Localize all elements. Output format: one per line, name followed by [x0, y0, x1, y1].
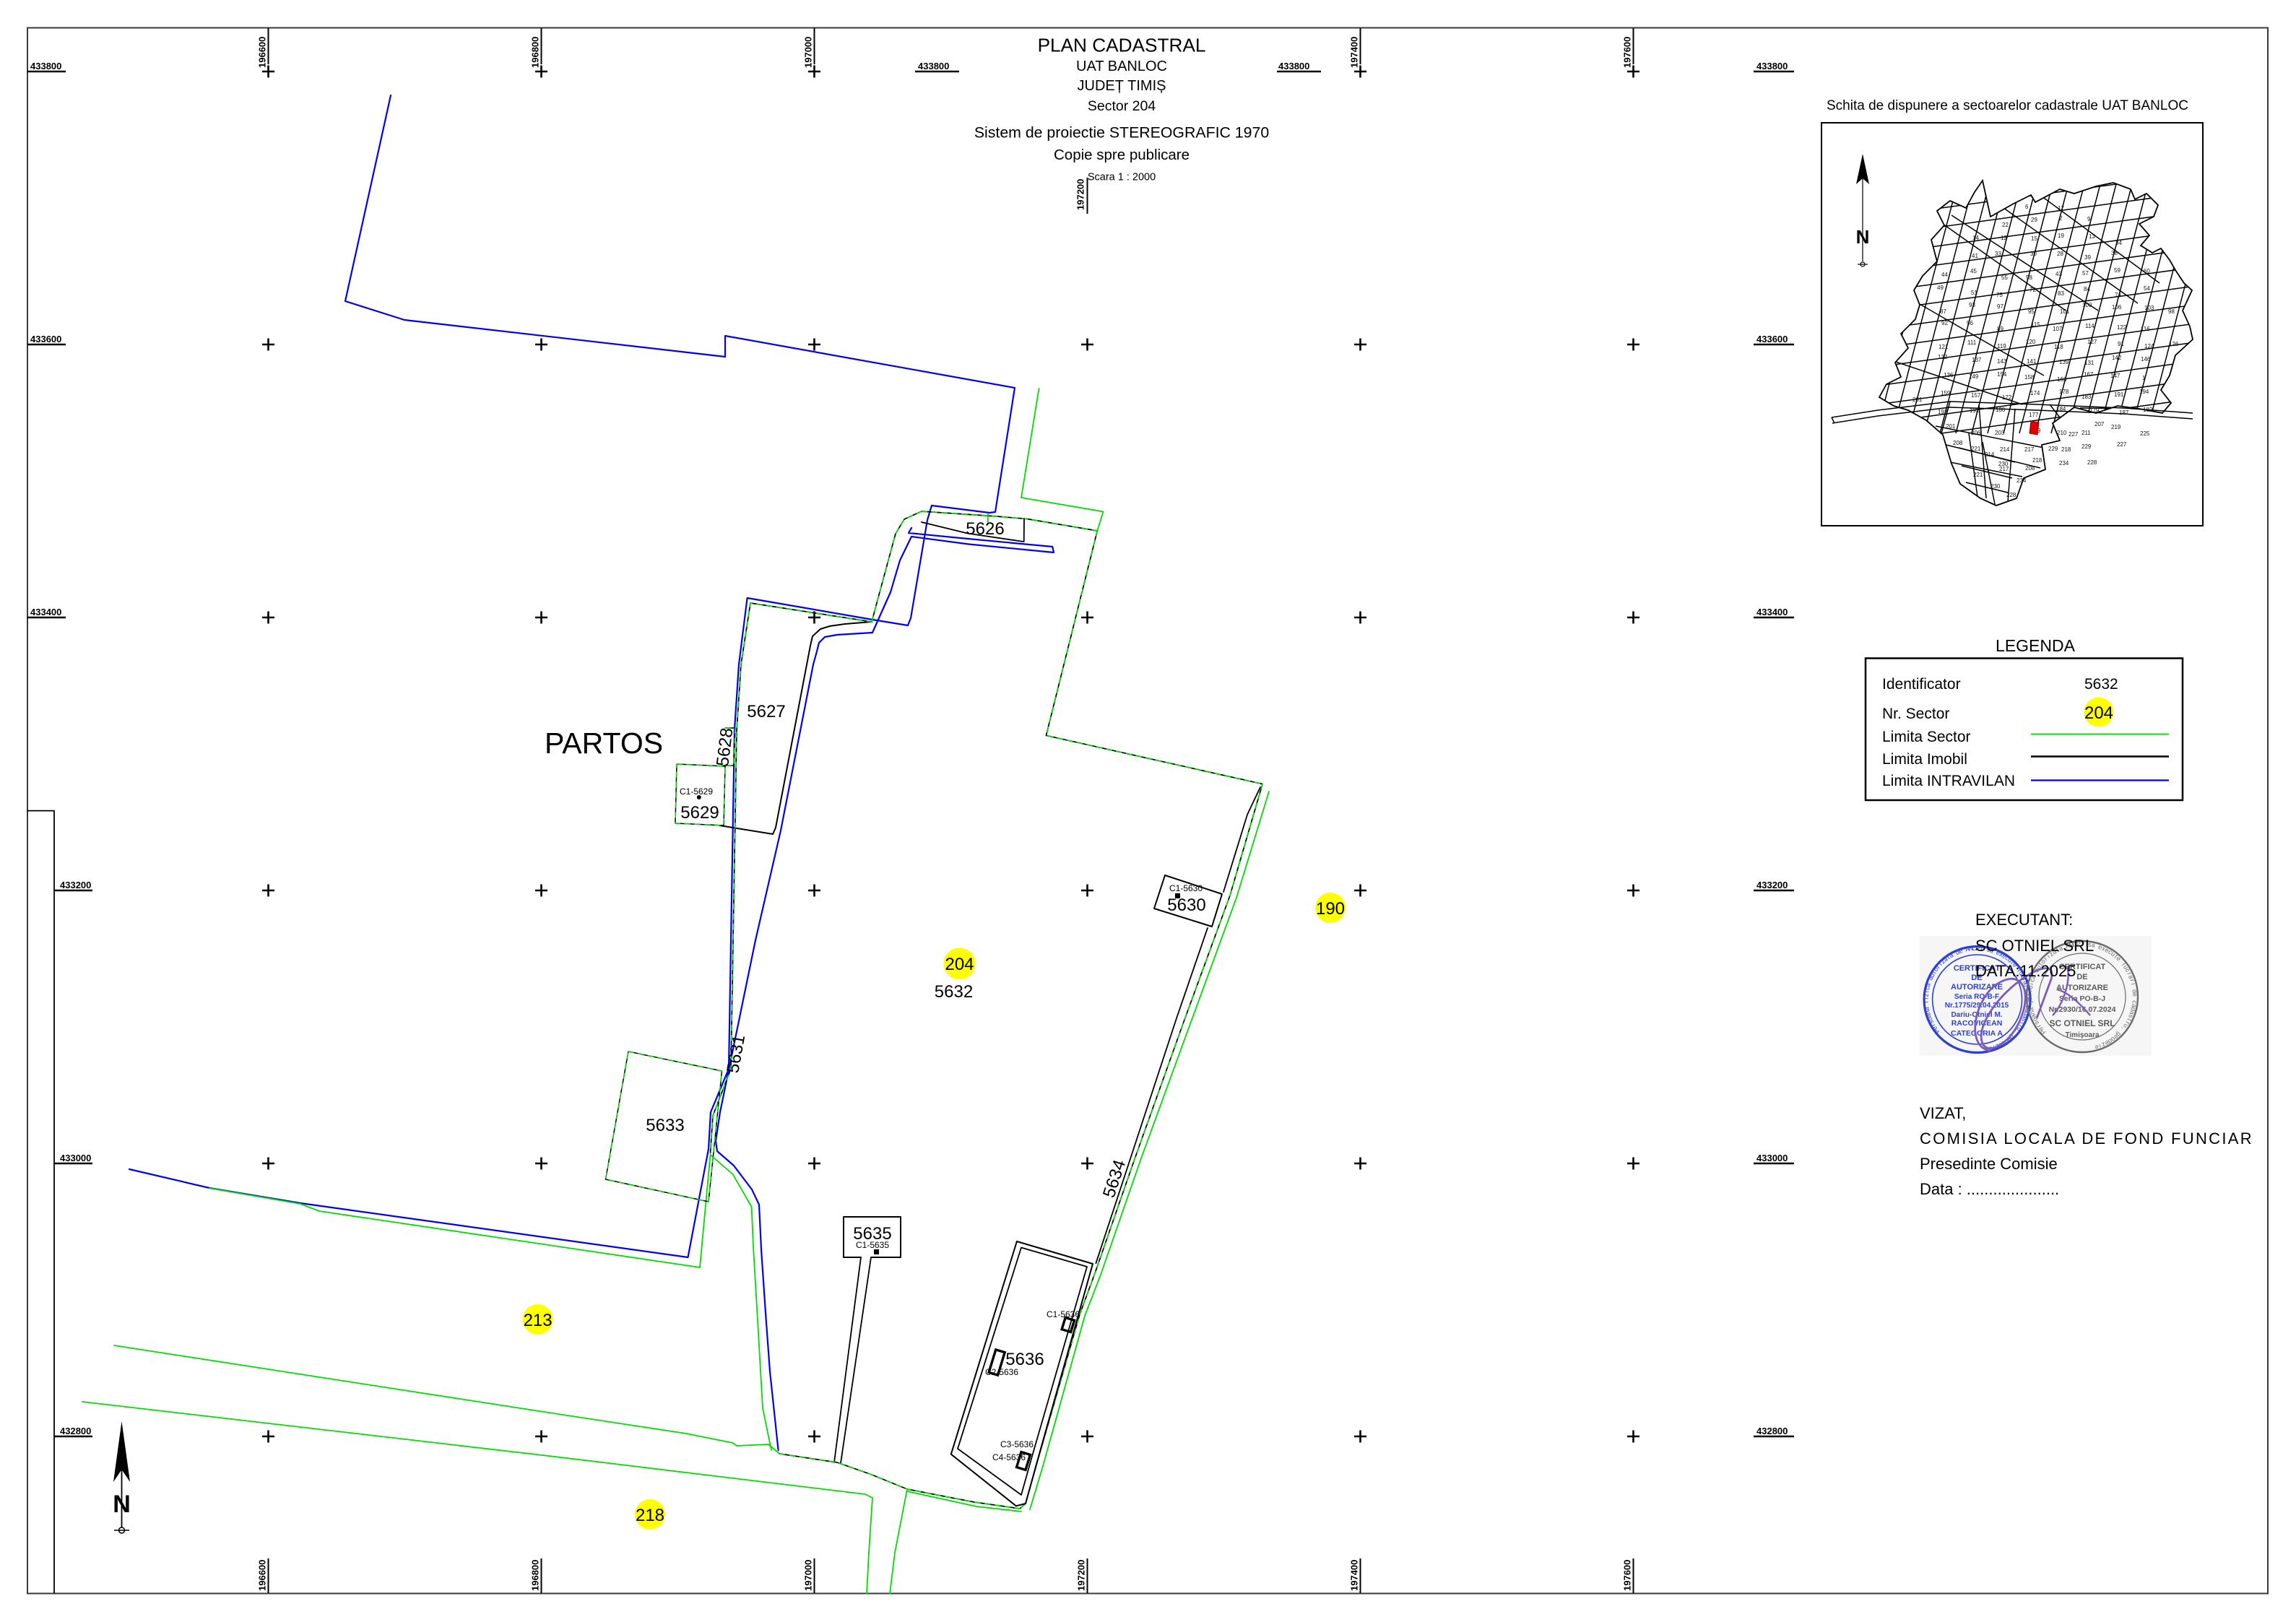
svg-text:196600: 196600: [257, 37, 268, 68]
svg-text:433200: 433200: [60, 880, 91, 890]
svg-text:Sistem de proiectie STEREOGRAF: Sistem de proiectie STEREOGRAFIC 1970: [974, 124, 1269, 142]
svg-text:57: 57: [2082, 270, 2089, 277]
svg-text:227: 227: [2117, 441, 2127, 448]
svg-text:192: 192: [1970, 407, 1980, 414]
svg-text:182: 182: [2143, 407, 2153, 413]
svg-text:93: 93: [1969, 302, 1975, 308]
svg-text:Copie spre publicare: Copie spre publicare: [1054, 147, 1190, 163]
svg-text:58: 58: [2026, 274, 2032, 281]
svg-text:Schita de dispunere a sectoare: Schita de dispunere a sectoarelor cadast…: [1827, 98, 2188, 113]
svg-text:28: 28: [2057, 251, 2063, 257]
svg-text:115: 115: [2031, 321, 2040, 328]
svg-text:114: 114: [2085, 323, 2094, 329]
svg-text:225: 225: [2140, 430, 2150, 437]
svg-text:184: 184: [2056, 406, 2066, 412]
svg-text:AUTORIZARE: AUTORIZARE: [1951, 983, 2003, 992]
svg-text:5627: 5627: [747, 702, 785, 721]
svg-text:228: 228: [2087, 459, 2097, 466]
svg-text:107: 107: [2053, 326, 2063, 332]
svg-text:Limita Sector: Limita Sector: [1882, 729, 1971, 745]
svg-text:122: 122: [2117, 324, 2127, 331]
svg-text:177: 177: [2029, 412, 2039, 418]
svg-text:DE: DE: [2076, 973, 2087, 981]
svg-text:C2-5636: C2-5636: [985, 1367, 1018, 1377]
svg-text:214: 214: [2000, 446, 2010, 453]
svg-text:221: 221: [1971, 446, 1981, 452]
svg-text:136: 136: [1944, 372, 1954, 378]
svg-text:u: u: [2026, 997, 2033, 1000]
svg-text:106: 106: [2112, 304, 2122, 311]
svg-text:6: 6: [2025, 204, 2029, 210]
svg-text:i: i: [1923, 998, 1930, 999]
svg-text:208: 208: [1953, 440, 1963, 446]
svg-text:227: 227: [2068, 431, 2079, 438]
svg-text:C1-5636: C1-5636: [1047, 1309, 1080, 1319]
svg-text:5632: 5632: [2084, 676, 2118, 693]
svg-text:433000: 433000: [60, 1153, 91, 1163]
svg-text:196800: 196800: [530, 37, 541, 68]
svg-text:1: 1: [2142, 375, 2146, 381]
svg-text:147: 147: [2110, 373, 2120, 379]
svg-text:217: 217: [2024, 446, 2035, 453]
svg-text:221: 221: [1973, 472, 1983, 478]
svg-text:146: 146: [2141, 356, 2151, 363]
svg-text:VIZAT,: VIZAT,: [1920, 1104, 1966, 1122]
svg-text:141: 141: [2027, 358, 2037, 365]
svg-text:229: 229: [2048, 446, 2058, 452]
svg-text:124: 124: [2144, 343, 2154, 350]
svg-text:Seria PO-B-J: Seria PO-B-J: [2059, 994, 2105, 1003]
svg-text:2: 2: [2059, 215, 2063, 222]
svg-text:5629: 5629: [680, 803, 719, 823]
svg-text:197400: 197400: [1349, 1560, 1360, 1591]
svg-text:43: 43: [2055, 271, 2062, 277]
svg-text:83: 83: [2058, 290, 2064, 297]
svg-text:191: 191: [2114, 391, 2124, 398]
svg-text:433600: 433600: [30, 334, 61, 344]
svg-text:59: 59: [2114, 267, 2120, 274]
svg-text:157: 157: [1971, 392, 1981, 399]
svg-text:Limita Imobil: Limita Imobil: [1882, 751, 1967, 768]
svg-text:PARTOS: PARTOS: [545, 727, 663, 760]
svg-text:Nr.1775/29.04.2015: Nr.1775/29.04.2015: [1945, 1002, 2009, 1010]
svg-text:432800: 432800: [1756, 1426, 1788, 1436]
svg-text:196800: 196800: [530, 1560, 541, 1591]
svg-text:C1-5630: C1-5630: [1169, 883, 1203, 893]
svg-text:22: 22: [2002, 222, 2009, 228]
svg-text:180: 180: [1996, 407, 2006, 413]
svg-text:116: 116: [2141, 326, 2150, 332]
svg-text:55: 55: [2001, 274, 2008, 281]
svg-text:197200: 197200: [1076, 1560, 1087, 1591]
svg-text:95: 95: [2028, 308, 2035, 315]
svg-text:51: 51: [1971, 290, 1977, 296]
svg-text:C3-5636: C3-5636: [1000, 1439, 1034, 1449]
svg-text:197600: 197600: [1622, 1560, 1633, 1591]
svg-text:218: 218: [636, 1506, 664, 1525]
svg-text:132: 132: [1938, 354, 1948, 360]
svg-text:433000: 433000: [1756, 1153, 1788, 1163]
svg-text:9: 9: [2087, 216, 2091, 222]
svg-text:Data : .....................: Data : .....................: [1920, 1180, 2059, 1198]
svg-text:201: 201: [1946, 423, 1956, 430]
svg-text:12: 12: [2001, 235, 2007, 241]
svg-text:121: 121: [1938, 344, 1949, 350]
svg-text:433800: 433800: [30, 61, 61, 71]
svg-text:92: 92: [1941, 320, 1948, 326]
svg-text:149: 149: [1969, 373, 1979, 380]
svg-text:139: 139: [2059, 359, 2069, 365]
svg-text:197000: 197000: [803, 37, 814, 68]
svg-text:5630: 5630: [1167, 895, 1205, 915]
svg-text:100: 100: [2082, 302, 2092, 308]
svg-text:Seria RO-B-F: Seria RO-B-F: [1954, 993, 1999, 1001]
svg-text:218: 218: [2061, 446, 2071, 453]
svg-text:433400: 433400: [1756, 607, 1788, 617]
svg-text:126: 126: [2169, 341, 2179, 347]
svg-text:197000: 197000: [803, 1560, 814, 1591]
svg-text:72: 72: [2029, 287, 2036, 293]
svg-text:Sector 204: Sector 204: [1088, 98, 1156, 114]
svg-text:433800: 433800: [918, 61, 949, 71]
svg-text:143: 143: [1997, 358, 2007, 365]
svg-text:75: 75: [1996, 292, 2003, 298]
svg-text:Timişoara: Timişoara: [2065, 1031, 2099, 1039]
svg-text:96: 96: [1967, 320, 1973, 326]
svg-text:218: 218: [2032, 457, 2042, 464]
svg-text:AUTORIZARE: AUTORIZARE: [2056, 984, 2108, 992]
svg-text:60: 60: [2144, 268, 2150, 274]
svg-text:33: 33: [1995, 251, 2001, 257]
svg-text:N: N: [1856, 226, 1870, 248]
svg-text:190: 190: [1316, 899, 1345, 919]
svg-text:Limita INTRAVILAN: Limita INTRAVILAN: [1882, 773, 2015, 789]
svg-text:433400: 433400: [30, 607, 61, 617]
svg-text:84: 84: [2084, 286, 2090, 292]
svg-text:433200: 433200: [1756, 880, 1788, 890]
svg-text:JUDEȚ TIMIȘ: JUDEȚ TIMIȘ: [1078, 78, 1166, 94]
svg-text:210: 210: [2057, 430, 2067, 436]
svg-text:119: 119: [1997, 343, 2006, 350]
svg-text:196600: 196600: [257, 1560, 268, 1591]
svg-text:C1-5629: C1-5629: [680, 786, 713, 797]
svg-text:127: 127: [2087, 339, 2097, 345]
svg-text:433800: 433800: [1278, 61, 1309, 71]
svg-text:N: N: [113, 1491, 131, 1518]
svg-text:29: 29: [2031, 217, 2037, 223]
svg-text:Identificator: Identificator: [1882, 676, 1961, 693]
svg-text:158: 158: [2024, 374, 2035, 381]
svg-text:154: 154: [1997, 371, 2007, 378]
svg-text:211: 211: [2081, 430, 2091, 436]
svg-text:SC OTNIEL SRL: SC OTNIEL SRL: [2049, 1018, 2115, 1028]
svg-text:103: 103: [2144, 305, 2154, 311]
svg-text:41: 41: [1972, 253, 1978, 259]
svg-text:118: 118: [2054, 344, 2063, 350]
svg-text:89: 89: [1997, 326, 2003, 332]
svg-text:217: 217: [1999, 466, 2009, 472]
svg-text:201: 201: [1912, 396, 1923, 403]
svg-text:120: 120: [2026, 339, 2036, 345]
svg-text:5633: 5633: [646, 1116, 684, 1135]
svg-text:e: e: [2131, 993, 2139, 997]
svg-text:15: 15: [2031, 235, 2037, 242]
svg-text:208: 208: [2025, 465, 2035, 472]
svg-text:197400: 197400: [1349, 37, 1360, 68]
svg-text:5636: 5636: [1005, 1350, 1044, 1369]
svg-text:13: 13: [2089, 233, 2095, 240]
svg-text:207: 207: [2094, 421, 2105, 428]
svg-text:91: 91: [2118, 341, 2124, 347]
svg-text:219: 219: [2111, 424, 2121, 430]
svg-text:432800: 432800: [60, 1426, 91, 1436]
svg-text:234: 234: [2059, 460, 2069, 467]
svg-text:159: 159: [1941, 390, 1951, 396]
svg-text:74: 74: [2115, 292, 2121, 298]
svg-text:229: 229: [2081, 443, 2092, 450]
svg-text:101: 101: [2060, 308, 2070, 315]
svg-text:137: 137: [1972, 357, 1982, 363]
svg-text:234: 234: [2016, 477, 2027, 484]
svg-text:39: 39: [2084, 254, 2091, 261]
svg-text:87: 87: [1940, 308, 1946, 315]
svg-text:163: 163: [2057, 376, 2067, 383]
svg-text:98: 98: [2168, 308, 2175, 315]
svg-text:194: 194: [2139, 389, 2149, 395]
svg-text:17: 17: [2058, 205, 2064, 212]
svg-text:433800: 433800: [1756, 61, 1788, 71]
svg-text:38: 38: [2111, 250, 2118, 256]
svg-text:34: 34: [2115, 240, 2122, 246]
svg-text:203: 203: [1995, 430, 2005, 436]
svg-text:19: 19: [2058, 233, 2064, 239]
svg-text:206: 206: [1971, 430, 1981, 436]
svg-text:174: 174: [2030, 390, 2040, 396]
svg-text:14: 14: [1972, 235, 1979, 241]
svg-text:54: 54: [2144, 285, 2150, 292]
svg-text:44: 44: [1941, 272, 1948, 278]
svg-text:Scara 1 : 2000: Scara 1 : 2000: [1088, 172, 1156, 183]
svg-text:DATA:11.2025: DATA:11.2025: [1975, 962, 2076, 980]
svg-text:131: 131: [2084, 360, 2094, 366]
svg-text:49: 49: [1937, 285, 1944, 291]
svg-text:97: 97: [1997, 303, 2003, 310]
svg-text:230: 230: [1990, 483, 2001, 490]
svg-text:30: 30: [2030, 251, 2037, 257]
svg-text:5626: 5626: [966, 519, 1004, 539]
svg-text:204: 204: [2084, 703, 2113, 723]
svg-text:5632: 5632: [935, 982, 973, 1002]
svg-text:COMISIA LOCALA DE FOND FUNCIAR: COMISIA LOCALA DE FOND FUNCIAR: [1920, 1129, 2253, 1148]
svg-text:204: 204: [945, 955, 974, 974]
svg-text:179: 179: [2089, 407, 2100, 414]
svg-text:197200: 197200: [1075, 179, 1086, 210]
svg-text:183: 183: [2081, 394, 2092, 400]
svg-text:Nr. Sector: Nr. Sector: [1882, 706, 1949, 722]
svg-text:SC OTNIEL SRL: SC OTNIEL SRL: [1975, 937, 2094, 955]
svg-text:111: 111: [1967, 339, 1977, 346]
svg-text:193: 193: [1938, 409, 1948, 415]
svg-text:187: 187: [2119, 409, 2129, 416]
svg-text:UAT BANLOC: UAT BANLOC: [1076, 58, 1167, 74]
svg-text:Presedinte Comisie: Presedinte Comisie: [1920, 1155, 2058, 1173]
svg-text:PLAN CADASTRAL: PLAN CADASTRAL: [1038, 35, 1206, 56]
svg-text:167: 167: [2084, 371, 2094, 378]
svg-text:213: 213: [524, 1311, 553, 1330]
svg-text:r: r: [2026, 994, 2033, 996]
svg-text:197600: 197600: [1622, 37, 1633, 68]
svg-text:45: 45: [1970, 268, 1977, 274]
svg-text:142: 142: [2112, 355, 2122, 361]
svg-text:EXECUTANT:: EXECUTANT:: [1975, 911, 2073, 929]
svg-text:C1-5635: C1-5635: [856, 1240, 889, 1250]
svg-text:172: 172: [2002, 394, 2012, 401]
svg-text:LEGENDA: LEGENDA: [1996, 636, 2076, 655]
svg-text:228: 228: [2006, 492, 2016, 498]
svg-text:433600: 433600: [1756, 334, 1788, 344]
svg-text:178: 178: [2059, 389, 2069, 395]
svg-text:214: 214: [1985, 451, 1995, 458]
